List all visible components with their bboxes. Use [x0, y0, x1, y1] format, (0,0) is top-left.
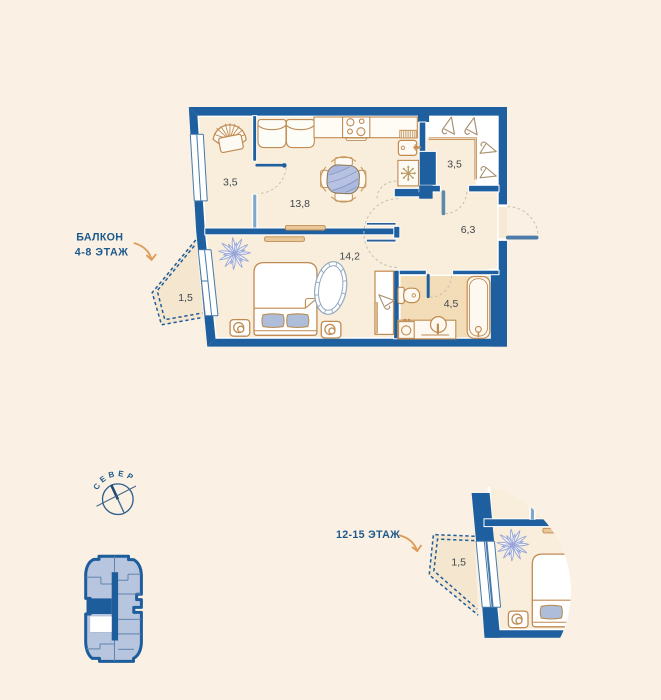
- svg-text:13,8: 13,8: [290, 198, 311, 210]
- svg-text:1,5: 1,5: [451, 556, 466, 568]
- svg-text:6,3: 6,3: [461, 224, 476, 236]
- svg-text:3,5: 3,5: [223, 177, 238, 189]
- svg-text:4,5: 4,5: [444, 298, 459, 310]
- svg-text:БАЛКОН: БАЛКОН: [76, 232, 123, 244]
- svg-text:3,5: 3,5: [447, 159, 462, 171]
- svg-text:12-15 ЭТАЖ: 12-15 ЭТАЖ: [336, 529, 400, 541]
- svg-text:4-8 ЭТАЖ: 4-8 ЭТАЖ: [75, 247, 129, 259]
- svg-text:1,5: 1,5: [178, 292, 193, 304]
- svg-text:14,2: 14,2: [339, 251, 360, 263]
